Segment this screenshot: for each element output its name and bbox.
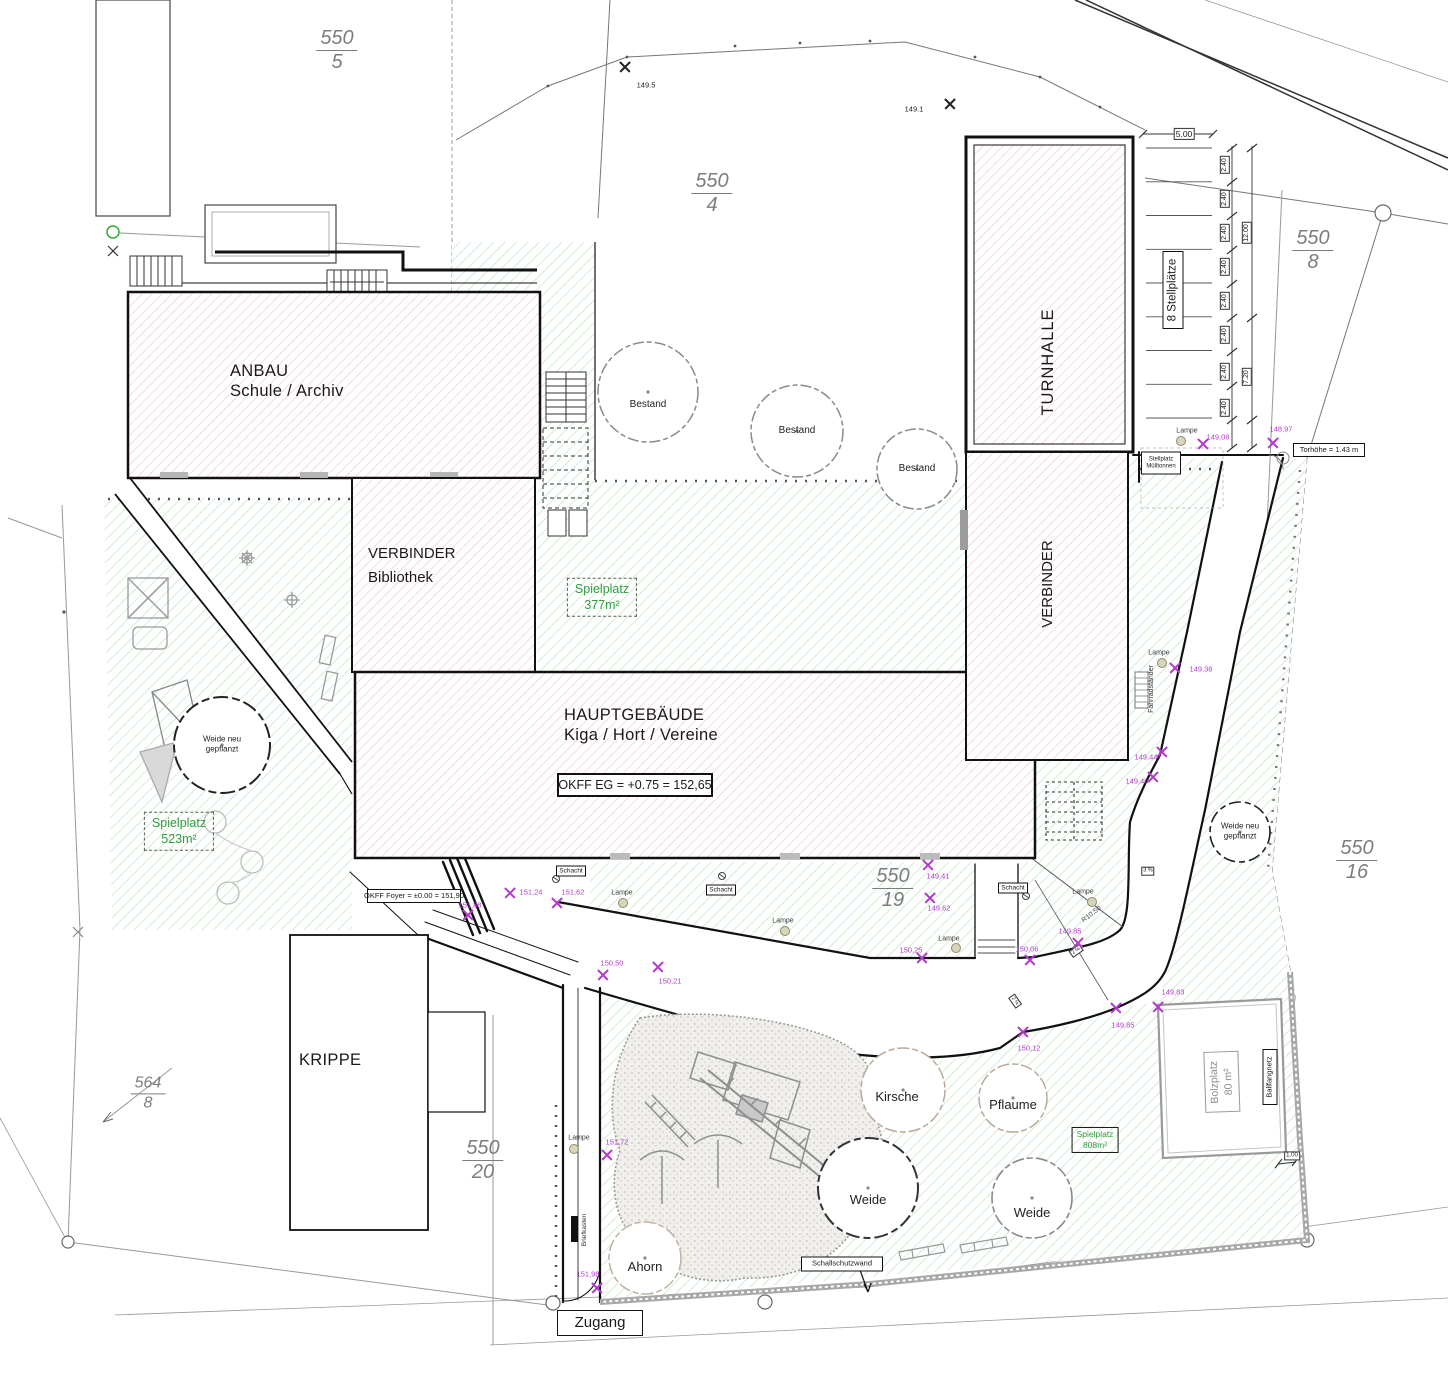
tree-label: Bestand	[779, 425, 816, 437]
elevation-label: 151,98	[577, 1270, 600, 1279]
elevation-label: 149,46	[1126, 777, 1149, 786]
lamp-label: Lampe	[611, 890, 632, 897]
lamp-dot-icon	[780, 926, 790, 936]
lamp-dot-icon	[951, 943, 961, 953]
elevation-label: 149.5	[637, 81, 656, 90]
elevation-label: 149,08	[1207, 433, 1230, 442]
tree-label: Weide neu gepflanzt	[189, 734, 255, 753]
elevation-label: 149,62	[928, 904, 951, 913]
elevation-label: 151,24	[520, 888, 543, 897]
elevation-label: 151,62	[562, 888, 585, 897]
elevation-label: 150,12	[1018, 1044, 1041, 1053]
elevation-label: 150,25	[900, 946, 923, 955]
elevation-label: 150,50	[601, 959, 624, 968]
elevation-label: 149,44	[1135, 753, 1158, 762]
tree-label: Ahorn	[628, 1259, 663, 1275]
elevation-label: 149,85	[1112, 1021, 1135, 1030]
lamp-label: Lampe	[568, 1135, 589, 1142]
tree-label: Kirsche	[875, 1089, 918, 1105]
lamp-label: Lampe	[938, 936, 959, 943]
elevation-label: 149,41	[927, 872, 950, 881]
elevation-label: 149,38	[1190, 665, 1213, 674]
elevation-label: 151,88	[459, 901, 482, 910]
tree-label: Weide	[850, 1192, 887, 1208]
lamp-label: Lampe	[772, 918, 793, 925]
lamp-dot-icon	[1087, 897, 1097, 907]
elevation-label: 151,72	[606, 1138, 629, 1147]
marker-layer: 149.5149.1148,97149,08149,38149,44149,46…	[0, 0, 1448, 1377]
tree-label: Bestand	[630, 399, 667, 411]
tree-label: Bestand	[899, 463, 936, 475]
lamp-dot-icon	[1157, 658, 1167, 668]
lamp-dot-icon	[618, 898, 628, 908]
lamp-label: Lampe	[1072, 889, 1093, 896]
elevation-label: 148,97	[1270, 425, 1293, 434]
tree-label: Pflaume	[989, 1097, 1037, 1113]
lamp-dot-icon	[569, 1144, 579, 1154]
elevation-label: 149.1	[905, 105, 924, 114]
tree-label: Weide neu gepflanzt	[1207, 821, 1273, 840]
elevation-label: 149,85	[1059, 927, 1082, 936]
lamp-dot-icon	[1176, 436, 1186, 446]
elevation-label: 149,83	[1162, 988, 1185, 997]
elevation-label: 150,06	[1016, 945, 1039, 954]
tree-label: Weide	[1014, 1205, 1051, 1221]
lamp-label: Lampe	[1176, 428, 1197, 435]
elevation-label: 150,21	[659, 977, 682, 986]
lamp-label: Lampe	[1148, 650, 1169, 657]
site-plan: 5505 5504 5508 55016 55019 55020 5648 AN…	[0, 0, 1448, 1377]
